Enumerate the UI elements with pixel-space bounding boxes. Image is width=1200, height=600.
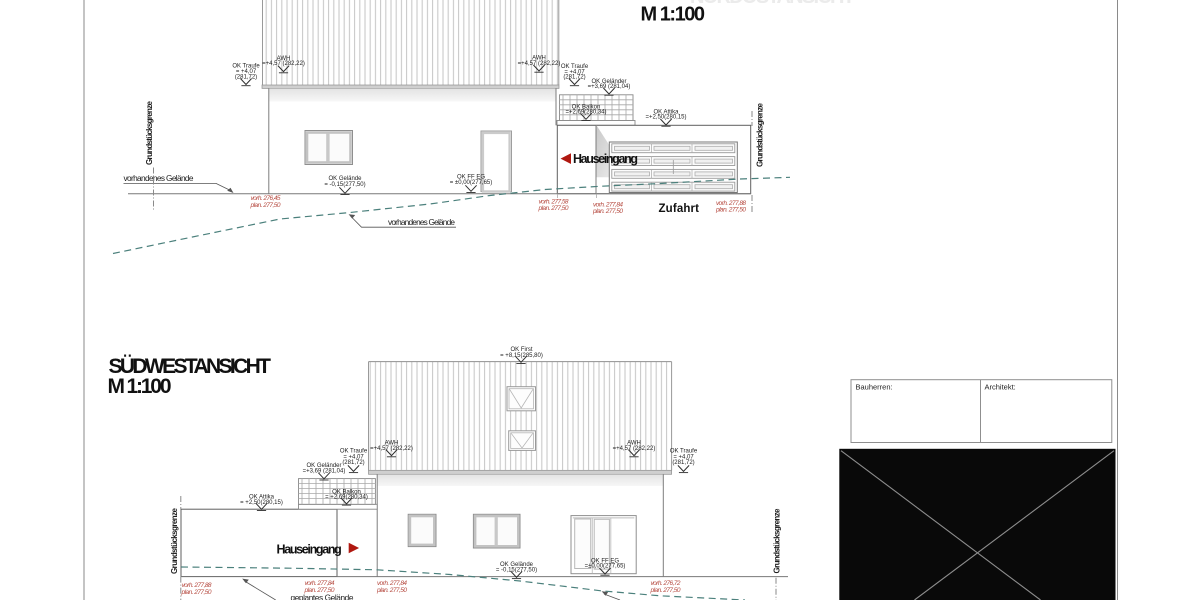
- svg-text:Grundstücksgrenze: Grundstücksgrenze: [170, 507, 179, 574]
- svg-text:=±0,00(277,65): =±0,00(277,65): [585, 564, 626, 570]
- svg-text:plan. 277,50: plan. 277,50: [304, 587, 335, 594]
- svg-text:plan. 277,50: plan. 277,50: [250, 202, 281, 209]
- svg-text:= +2,50(280,15): = +2,50(280,15): [240, 500, 283, 506]
- svg-text:plan. 277,50: plan. 277,50: [715, 207, 746, 214]
- svg-text:=+4,57 (282,22): =+4,57 (282,22): [613, 446, 656, 452]
- svg-text:=+4,57 (282,22): =+4,57 (282,22): [262, 61, 305, 67]
- svg-text:M 1:100: M 1:100: [641, 3, 706, 25]
- svg-text:plan. 277,50: plan. 277,50: [650, 587, 681, 594]
- svg-text:(281,72): (281,72): [342, 460, 364, 466]
- svg-text:= -0,15(277,50): = -0,15(277,50): [324, 182, 365, 188]
- svg-text:=+2,50(280,15): =+2,50(280,15): [645, 115, 686, 121]
- svg-text:plan. 277,50: plan. 277,50: [538, 205, 569, 212]
- svg-text:Grundstücksgrenze: Grundstücksgrenze: [145, 100, 154, 165]
- svg-text:=+4,57 (282,22): =+4,57 (282,22): [518, 61, 561, 67]
- svg-text:(281,72): (281,72): [563, 75, 585, 81]
- svg-text:=+4,57 (282,22): =+4,57 (282,22): [370, 446, 413, 452]
- svg-text:=+3,69 (281,04): =+3,69 (281,04): [303, 468, 346, 474]
- svg-text:Hauseingang: Hauseingang: [573, 152, 638, 166]
- svg-text:(281,72): (281,72): [672, 460, 694, 466]
- svg-text:= ±0,00(277,65): = ±0,00(277,65): [450, 180, 493, 186]
- svg-text:Grundstücksgrenze: Grundstücksgrenze: [773, 508, 782, 574]
- svg-text:vorhandenes Gelände: vorhandenes Gelände: [124, 173, 194, 183]
- svg-text:Bauherren:: Bauherren:: [856, 382, 893, 391]
- svg-text:plan. 277,50: plan. 277,50: [376, 587, 407, 594]
- svg-text:vorhandenes Gelände: vorhandenes Gelände: [388, 217, 455, 227]
- svg-text:plan. 277,50: plan. 277,50: [181, 589, 212, 596]
- svg-text:= +8,15(285,80): = +8,15(285,80): [500, 353, 543, 359]
- svg-text:plan. 277,50: plan. 277,50: [592, 208, 623, 215]
- svg-text:M 1:100: M 1:100: [108, 375, 172, 398]
- svg-text:Zufahrt: Zufahrt: [659, 203, 700, 215]
- svg-text:(281,72): (281,72): [235, 74, 257, 80]
- svg-text:Hauseingang: Hauseingang: [277, 542, 342, 556]
- svg-text:= +2,69(280,34): = +2,69(280,34): [325, 495, 368, 501]
- svg-text:NORDOSTANSICHT: NORDOSTANSICHT: [690, 0, 855, 8]
- svg-text:=+3,69 (281,04): =+3,69 (281,04): [588, 84, 631, 90]
- svg-text:Grundstücksgrenze: Grundstücksgrenze: [756, 102, 765, 167]
- svg-text:= -0,15(277,50): = -0,15(277,50): [496, 567, 537, 573]
- svg-text:=+2,69(280,34): =+2,69(280,34): [565, 109, 606, 115]
- svg-text:Architekt:: Architekt:: [985, 382, 1016, 391]
